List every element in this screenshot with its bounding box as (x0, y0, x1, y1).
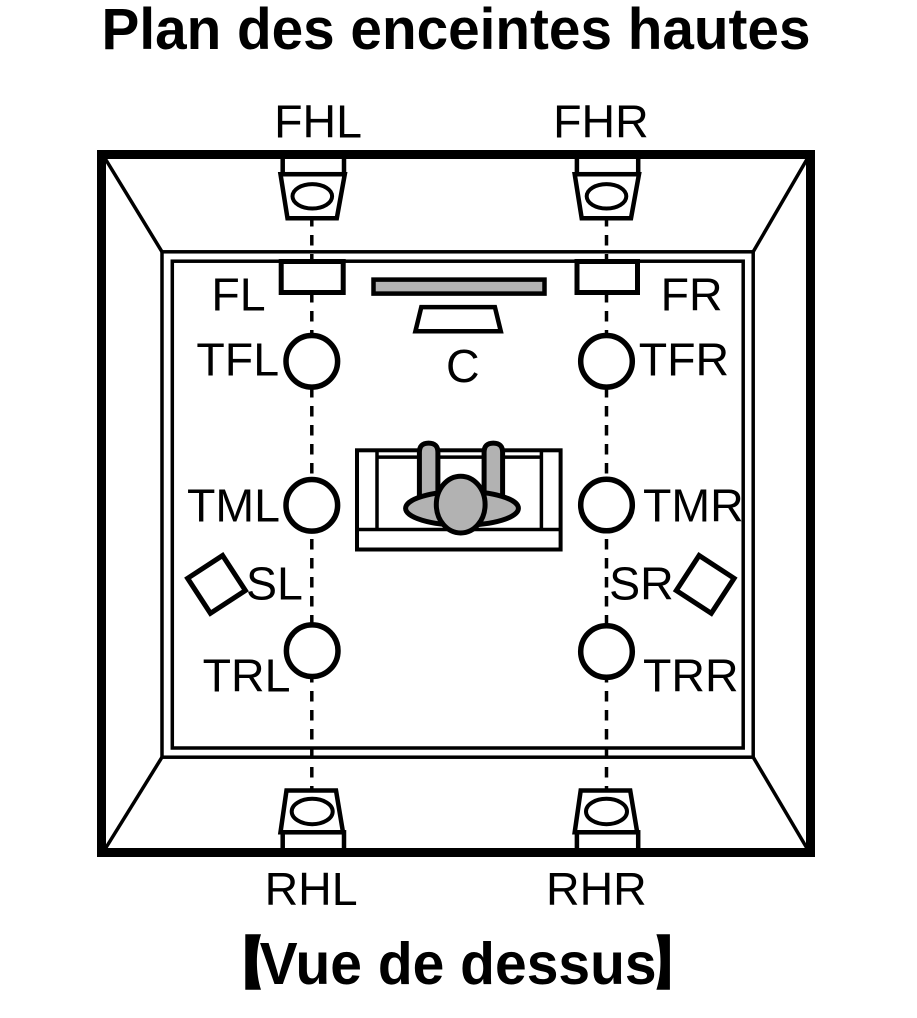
svg-text:TFR: TFR (639, 333, 729, 385)
svg-text:Plan des enceintes hautes: Plan des enceintes hautes (102, 0, 811, 62)
svg-text:Vue de dessus: Vue de dessus (260, 931, 657, 997)
svg-text:FL: FL (211, 269, 265, 321)
svg-text:FR: FR (661, 269, 723, 321)
svg-text:TMR: TMR (643, 479, 744, 531)
svg-text:RHL: RHL (265, 863, 358, 915)
svg-text:SR: SR (609, 558, 674, 610)
svg-text:TFL: TFL (196, 333, 279, 385)
svg-text:FHL: FHL (274, 96, 362, 148)
svg-text:TRR: TRR (643, 649, 739, 701)
svg-text:C: C (446, 340, 480, 392)
svg-text:SL: SL (246, 558, 303, 610)
svg-text:RHR: RHR (546, 863, 647, 915)
svg-text:FHR: FHR (553, 96, 649, 148)
svg-text:TRL: TRL (203, 649, 291, 701)
svg-text:TML: TML (187, 479, 280, 531)
